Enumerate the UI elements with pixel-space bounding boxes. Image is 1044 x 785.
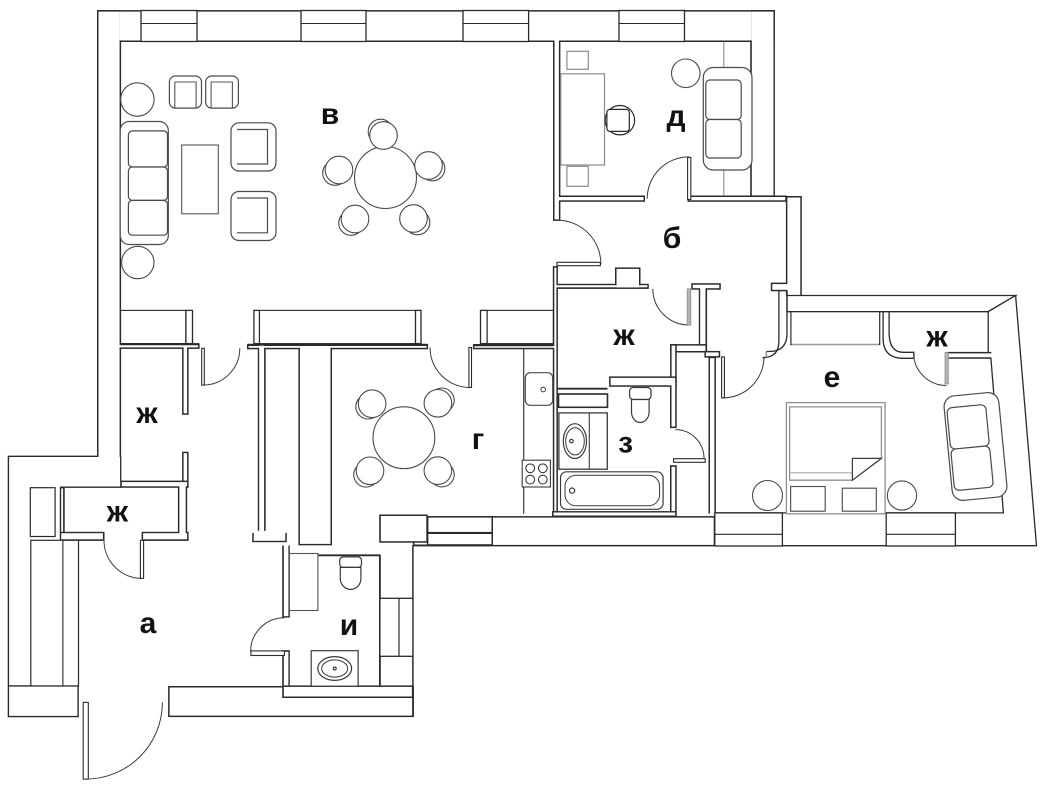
svg-text:ж: ж	[106, 496, 129, 529]
svg-text:б: б	[663, 222, 682, 255]
svg-text:а: а	[140, 607, 157, 640]
svg-text:з: з	[618, 427, 633, 460]
svg-text:в: в	[321, 98, 339, 131]
svg-text:ж: ж	[925, 321, 948, 354]
svg-text:д: д	[666, 100, 685, 133]
svg-text:ж: ж	[612, 319, 635, 352]
svg-text:и: и	[340, 609, 358, 642]
svg-text:г: г	[472, 423, 485, 456]
svg-text:ж: ж	[135, 397, 158, 430]
svg-text:е: е	[824, 361, 841, 394]
